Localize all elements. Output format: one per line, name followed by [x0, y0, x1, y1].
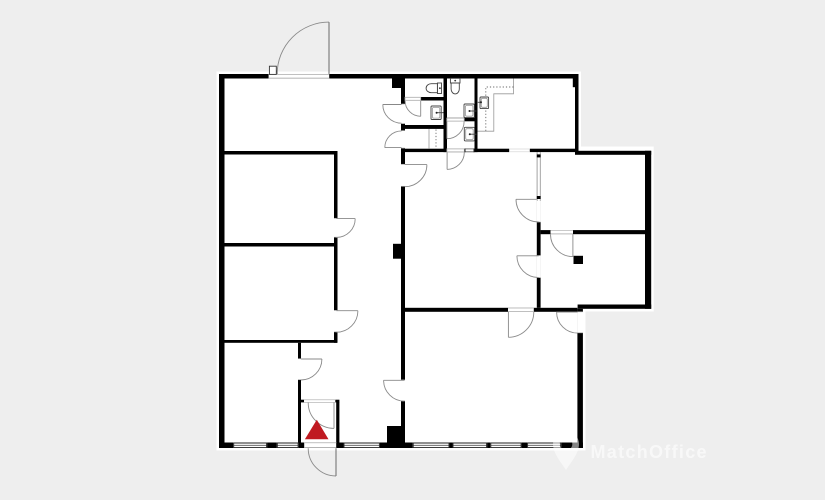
svg-text:MatchOffice: MatchOffice: [591, 442, 708, 462]
